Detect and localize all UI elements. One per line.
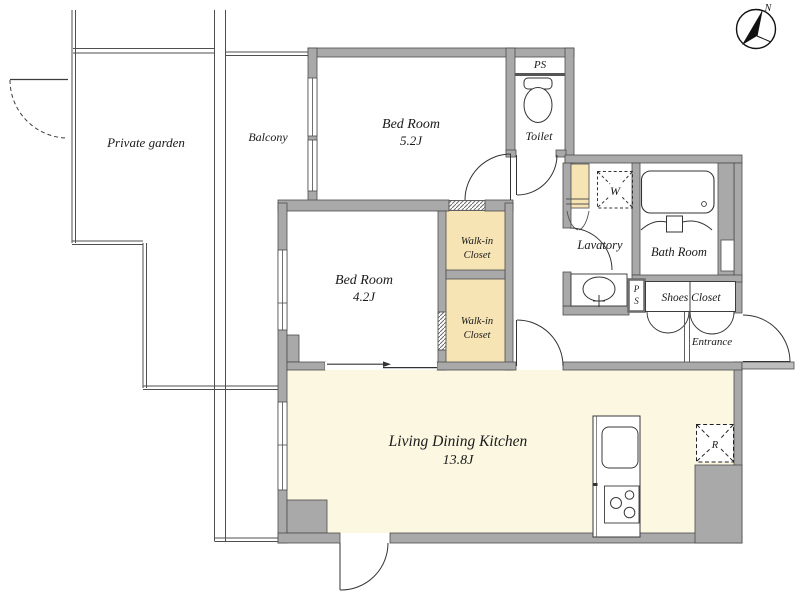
bedroom-upper-area: 5.2J — [400, 133, 423, 148]
walkin-upper-label-2: Closet — [464, 250, 492, 261]
bedroom-lower-label: Bed Room — [335, 273, 393, 288]
kitchen-counter-icon — [593, 416, 641, 537]
ldk-service-door — [340, 543, 388, 590]
washer-label: W — [610, 184, 621, 198]
toilet-icon — [524, 78, 552, 123]
toilet-label: Toilet — [526, 129, 554, 143]
bath-wall-niche — [721, 240, 734, 271]
floor-plan: Private garden Balcony Bed Room 5.2J Bed… — [0, 0, 800, 595]
ldk-floor — [287, 370, 735, 533]
bathtub-icon — [642, 171, 715, 213]
stove-icon — [605, 486, 640, 523]
entrance-label: Entrance — [691, 336, 732, 348]
sliding-door — [325, 361, 437, 370]
toilet-ps-divider-wall — [515, 73, 565, 76]
bath-label: Bath Room — [651, 245, 707, 259]
ps-top-label: PS — [533, 59, 547, 71]
bedroom-upper-label: Bed Room — [382, 117, 440, 132]
balcony-label: Balcony — [248, 130, 288, 144]
ps-side-p: P — [633, 284, 640, 294]
ldk-window — [278, 402, 287, 490]
walkin-lower-label-1: Walk-in — [461, 316, 493, 327]
compass-icon — [737, 10, 776, 49]
shoes-closet-label: Shoes Closet — [661, 292, 721, 304]
walkin-lower-label-2: Closet — [464, 330, 492, 341]
private-garden-label: Private garden — [106, 135, 185, 150]
bedroom-lower-area: 4.2J — [353, 289, 376, 304]
garden-gate-door — [10, 80, 68, 139]
north-label: N — [764, 3, 773, 14]
lavatory-label: Lavatory — [576, 238, 623, 252]
ps-side-s: S — [634, 296, 639, 306]
floor-plan-svg: Private garden Balcony Bed Room 5.2J Bed… — [0, 0, 800, 595]
washbasin-icon — [571, 274, 627, 307]
ldk-area: 13.8J — [443, 453, 475, 468]
outdoor-boundaries — [72, 10, 309, 542]
kitchen-sink-icon — [602, 427, 638, 468]
fridge-label: R — [711, 440, 719, 451]
bedroom-lower-window — [278, 250, 287, 330]
ldk-label: Living Dining Kitchen — [388, 433, 528, 450]
bedroom-upper-window — [308, 78, 317, 191]
entrance-door — [743, 315, 790, 362]
walkin-upper-label-1: Walk-in — [461, 236, 493, 247]
